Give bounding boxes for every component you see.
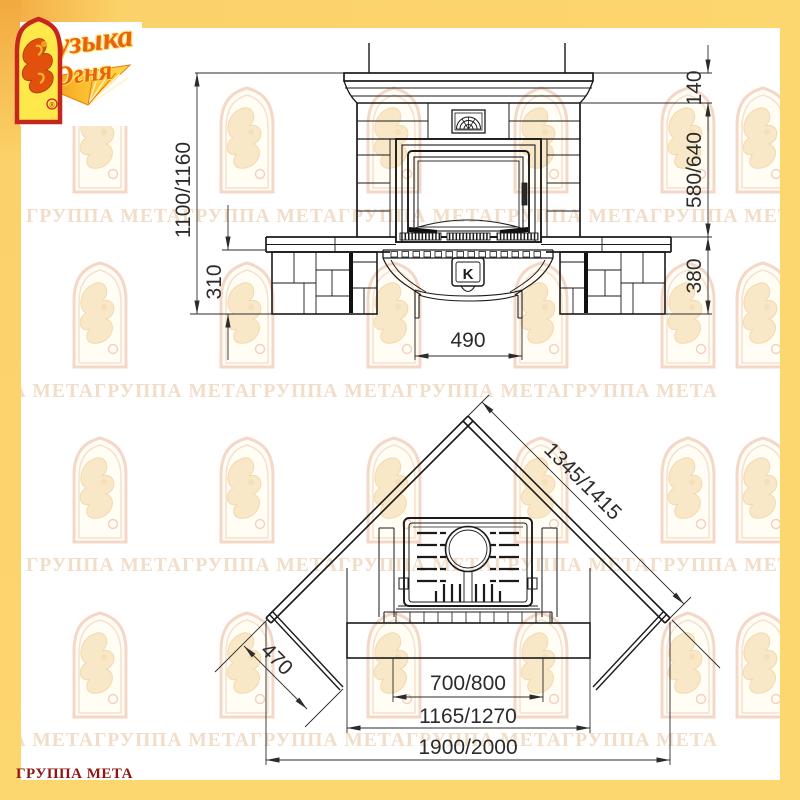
gruppa-meta-emblem: ® (0, 0, 110, 128)
dim-opening-width: 700/800 (430, 672, 506, 695)
balusters (391, 252, 541, 258)
insert-plan (396, 518, 540, 609)
chimney-lines (369, 43, 565, 73)
dim-mantel-height: 140 (683, 70, 706, 105)
door-handle (522, 183, 527, 205)
page-border-bottom (0, 780, 800, 800)
side-fins (417, 533, 519, 581)
front-view-dimensions (190, 45, 712, 360)
fan-emblem (452, 110, 485, 133)
k-emblem-letter: K (463, 266, 474, 283)
firebox (396, 139, 541, 242)
base-left-block (272, 252, 377, 314)
firebox-door (408, 151, 529, 237)
dim-plinth-height: 310 (203, 264, 226, 299)
hearth-plan (347, 612, 590, 658)
dim-firebox-height: 580/640 (683, 132, 706, 208)
gruppa-meta-label: ГРУППА МЕТА (16, 766, 146, 783)
pedestal (383, 250, 553, 318)
log-retainer (412, 220, 524, 229)
page-border-right (780, 0, 800, 800)
base-right-block (560, 252, 665, 314)
dim-side-face: 470 (256, 639, 297, 680)
k-emblem: K (452, 258, 484, 292)
air-grill (400, 233, 538, 240)
bottom-fins (436, 584, 500, 602)
front-view: K (266, 43, 671, 318)
dim-overall-width: 1900/2000 (418, 736, 517, 759)
dim-wall-length: 1345/1415 (539, 438, 625, 524)
registered-mark: ® (49, 102, 55, 110)
flue-collar (446, 527, 491, 572)
dim-hearth-width: 1165/1270 (419, 705, 517, 728)
plan-view (266, 416, 670, 690)
dim-total-height: 1100/1160 (172, 142, 195, 238)
dim-base-height: 380 (683, 258, 706, 293)
catalog-page: ГРУППА МЕТАГРУППА МЕТАГРУППА МЕТАГРУППА … (0, 0, 800, 800)
dim-pedestal-width: 490 (450, 329, 485, 352)
mantel-shelf (344, 73, 593, 103)
